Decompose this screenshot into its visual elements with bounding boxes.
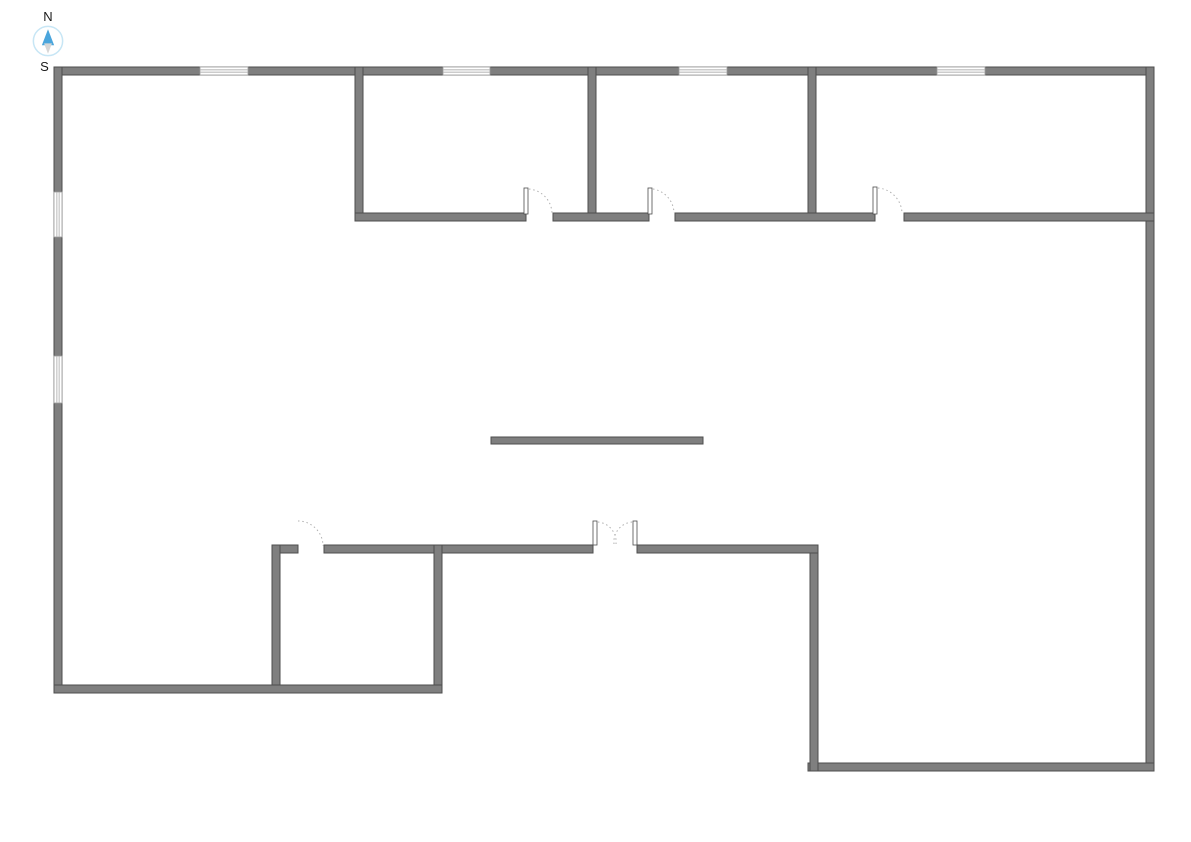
window-left-2[interactable] bbox=[54, 356, 62, 403]
top-rooms-bottom-wall-4[interactable] bbox=[904, 213, 1154, 221]
top-rooms-bottom-wall-2[interactable] bbox=[553, 213, 649, 221]
door-swing-arc bbox=[529, 189, 552, 213]
door-swing-arc bbox=[598, 522, 616, 544]
door-leaf bbox=[633, 521, 637, 545]
window-left-1[interactable] bbox=[54, 192, 62, 237]
window-top-1-frame bbox=[200, 67, 248, 75]
compass-south-label: S bbox=[40, 59, 49, 74]
mid-wall-center[interactable] bbox=[324, 545, 593, 553]
top-room-divider-2[interactable] bbox=[808, 67, 816, 221]
compass-rose bbox=[31, 24, 65, 58]
lower-room-left-wall[interactable] bbox=[272, 545, 280, 693]
door-top-room-2[interactable] bbox=[648, 188, 674, 214]
door-swing-arc bbox=[878, 188, 902, 213]
top-rooms-bottom-wall-3[interactable] bbox=[675, 213, 875, 221]
floor-plan-canvas[interactable]: N S bbox=[0, 0, 1191, 842]
door-leaf bbox=[648, 188, 652, 214]
freestanding-island-wall[interactable] bbox=[491, 437, 703, 444]
exterior-bottom-left-wall[interactable] bbox=[54, 685, 442, 693]
window-top-4-frame bbox=[937, 67, 985, 75]
window-top-2-frame bbox=[443, 67, 490, 75]
notch-vertical-wall[interactable] bbox=[810, 545, 818, 771]
compass-north-label: N bbox=[30, 10, 66, 23]
top-room-divider-1[interactable] bbox=[588, 67, 596, 221]
door-leaf bbox=[873, 187, 877, 214]
top-room-1-left-wall[interactable] bbox=[355, 67, 363, 221]
door-leaf bbox=[593, 521, 597, 545]
double-door-main[interactable] bbox=[593, 521, 637, 545]
window-top-3[interactable] bbox=[679, 67, 727, 75]
window-left-2-frame bbox=[54, 356, 62, 403]
door-swing-arc bbox=[298, 521, 323, 546]
window-top-1[interactable] bbox=[200, 67, 248, 75]
door-swing-arc bbox=[614, 522, 632, 544]
exterior-right-wall[interactable] bbox=[1146, 67, 1154, 771]
lower-room-right-wall[interactable] bbox=[434, 545, 442, 693]
exterior-bottom-right-wall[interactable] bbox=[808, 763, 1154, 771]
top-rooms-bottom-wall-1[interactable] bbox=[355, 213, 526, 221]
window-top-4[interactable] bbox=[937, 67, 985, 75]
door-top-room-3[interactable] bbox=[873, 187, 902, 214]
door-lower-room[interactable] bbox=[298, 521, 323, 546]
mid-wall-right[interactable] bbox=[637, 545, 818, 553]
compass: N S bbox=[30, 10, 66, 75]
floor-plan bbox=[0, 0, 1191, 842]
door-swing-arc bbox=[653, 189, 674, 213]
door-top-room-1[interactable] bbox=[524, 188, 552, 214]
window-top-2[interactable] bbox=[443, 67, 490, 75]
window-left-1-frame bbox=[54, 192, 62, 237]
window-top-3-frame bbox=[679, 67, 727, 75]
door-leaf bbox=[524, 188, 528, 214]
